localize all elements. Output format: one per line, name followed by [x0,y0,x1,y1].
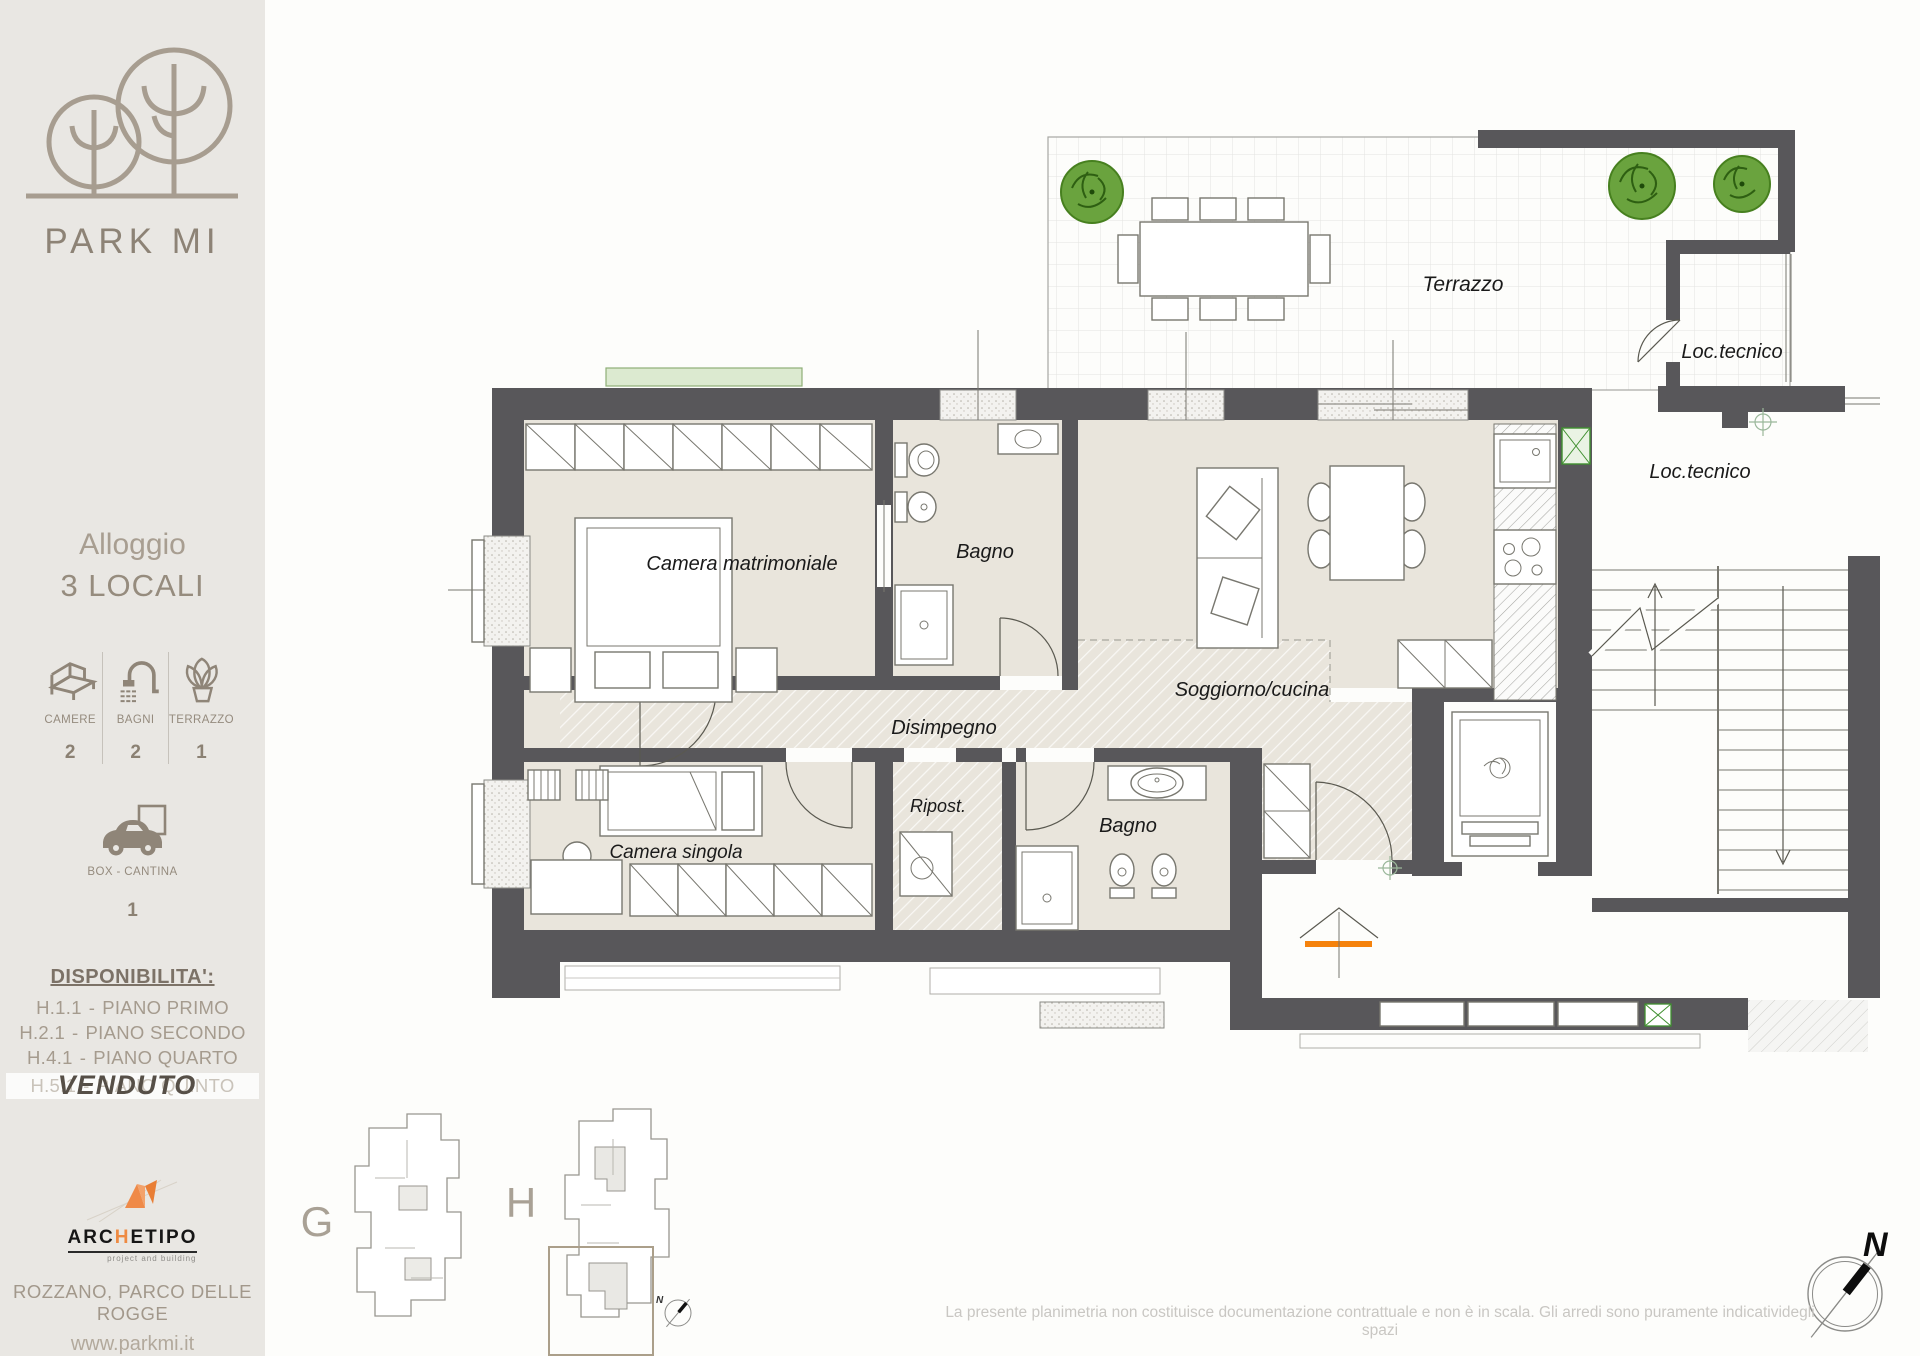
availability-item: H.2.1-PIANO SECONDO [0,1022,265,1044]
disclaimer-text: La presente planimetria non costituisce … [940,1304,1820,1340]
room-label-terrazzo: Terrazzo [1423,273,1504,296]
archetipo-logo-icon [85,1178,181,1222]
availability-item-code: H.4.1 [27,1047,73,1068]
availability-item-floor: PIANO PRIMO [102,997,229,1018]
tree-icon [1061,161,1123,223]
bed-icon [38,654,102,706]
sold-stamp: VENDUTO [58,1070,197,1101]
availability-separator: - [73,1047,93,1068]
availability-separator: - [65,1022,85,1043]
stat-bagni: BAGNI 2 [102,652,167,764]
room-label-ripostiglio: Ripost. [910,796,966,816]
minimap-building-h: H [506,1109,669,1355]
room-label-bagno-top: Bagno [956,541,1014,563]
stat-box-value: 1 [0,900,265,922]
stat-box-label: BOX - CANTINA [0,866,265,878]
room-label-camera-matrimoniale: Camera matrimoniale [646,553,837,575]
apartment-stats: CAMERE 2 BAGNI 2 [38,652,234,764]
availability-item-floor: PIANO QUARTO [93,1047,238,1068]
room-label-soggiorno: Soggiorno/cucina [1175,679,1330,701]
availability-item-code: H.1.1 [36,997,82,1018]
stairwell [1592,566,1848,894]
availability-title: DISPONIBILITA': [0,966,265,989]
stat-terrazzo: TERRAZZO 1 [168,652,234,764]
plant-icon [169,654,234,706]
stat-bagni-label: BAGNI [103,714,167,726]
stat-bagni-value: 2 [103,742,167,764]
shower-icon [103,654,167,706]
tree-icon [1609,153,1675,219]
stat-camere-label: CAMERE [38,714,102,726]
flyer-page: Terrazzo Loc.tecnico Loc.tecnico Camera … [0,0,1920,1356]
park-mi-logo-trees-icon [22,14,242,214]
minimap-building-g: G [301,1114,461,1316]
apartment-type-value: 3 LOCALI [0,568,265,604]
availability-list: DISPONIBILITA': H.1.1-PIANO PRIMO H.2.1-… [0,966,265,1099]
elevator [1452,712,1548,856]
room-label-camera-singola: Camera singola [609,842,742,863]
availability-item: H.1.1-PIANO PRIMO [0,997,265,1019]
apartment-type-label: Alloggio [0,528,265,562]
developer-tagline: project and building [69,1254,197,1263]
tree-icon [1714,156,1770,212]
minimap-label-g: G [301,1198,334,1245]
room-label-loc-tecnico-top: Loc.tecnico [1681,341,1782,363]
car-icon [0,800,265,858]
availability-item-floor: PIANO SECONDO [86,1022,246,1043]
compass-north-label: N [1863,1226,1889,1264]
room-label-loc-tecnico-right: Loc.tecnico [1649,461,1750,483]
sidebar: PARK MI Alloggio 3 LOCALI CAMERE 2 [0,0,265,1356]
mini-compass-north-label: N [656,1295,664,1306]
project-location: ROZZANO, PARCO DELLE ROGGE [0,1281,265,1325]
developer-name: ARCHETIPO [68,1227,198,1253]
fixtures-ripostiglio [900,832,952,896]
availability-item-code: H.2.1 [19,1022,65,1043]
website-link[interactable]: www.parkmi.it [0,1333,265,1356]
developer-block: ARCHETIPO project and building ROZZANO, … [0,1178,265,1356]
availability-item-sold: H.5.1-PIANO QUINTO VENDUTO [6,1073,259,1099]
stat-terrazzo-label: TERRAZZO [169,714,234,726]
compass-icon: N [1808,1226,1889,1337]
availability-separator: - [82,997,102,1018]
availability-item: H.4.1-PIANO QUARTO [0,1047,265,1069]
room-label-bagno-bottom: Bagno [1099,815,1157,837]
stat-camere: CAMERE 2 [38,652,102,764]
room-label-disimpegno: Disimpegno [891,717,997,739]
minimap-label-h: H [506,1179,536,1226]
stat-camere-value: 2 [38,742,102,764]
stat-terrazzo-value: 1 [169,742,234,764]
brand-name: PARK MI [0,222,265,262]
mini-compass-icon: N [656,1295,691,1327]
stat-box-cantina: BOX - CANTINA 1 [0,800,265,922]
floor-plan: Terrazzo Loc.tecnico Loc.tecnico Camera … [0,0,1920,1356]
